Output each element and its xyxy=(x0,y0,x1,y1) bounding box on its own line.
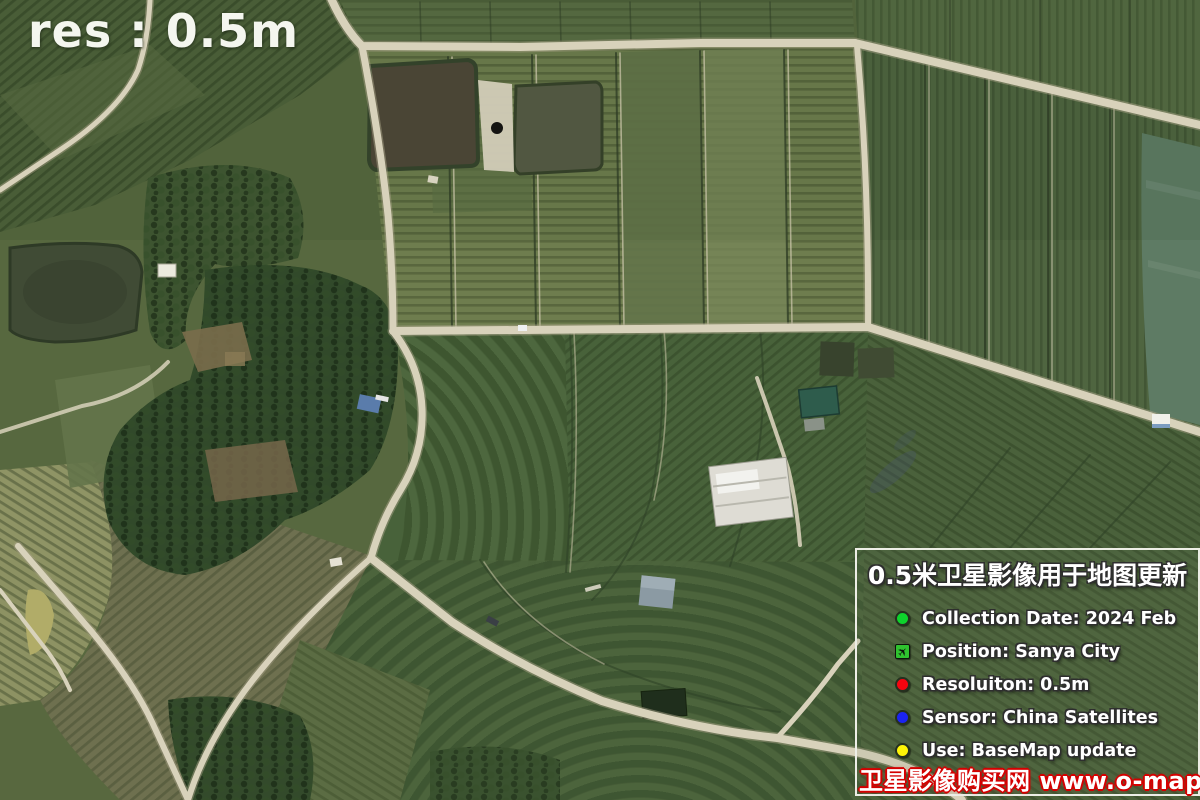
info-panel: 0.5米卫星影像用于地图更新 Collection Date: 2024 Feb… xyxy=(855,548,1200,796)
plane-glyph: ✈ xyxy=(895,644,911,660)
panel-title: 0.5米卫星影像用于地图更新 xyxy=(857,556,1198,592)
info-item-label: Resoluiton: 0.5m xyxy=(922,675,1089,695)
info-item-collection-date: Collection Date: 2024 Feb xyxy=(895,602,1198,635)
info-item-position: ✈ Position: Sanya City xyxy=(895,635,1198,668)
info-item-resolution: Resoluiton: 0.5m xyxy=(895,668,1198,701)
info-item-label: Sensor: China Satellites xyxy=(922,708,1158,728)
resolution-overlay-label: res : 0.5m xyxy=(28,4,299,58)
use-dot-icon xyxy=(895,743,910,758)
watermark-site-label: 卫星影像购买网 www.o-map.cn xyxy=(859,761,1200,796)
satellite-screenshot: res : 0.5m 0.5米卫星影像用于地图更新 Collection Dat… xyxy=(0,0,1200,800)
info-item-label: Use: BaseMap update xyxy=(922,741,1136,761)
collection-date-dot-icon xyxy=(895,611,910,626)
info-item-label: Position: Sanya City xyxy=(922,642,1120,662)
position-plane-icon: ✈ xyxy=(895,644,910,659)
sensor-dot-icon xyxy=(895,710,910,725)
info-item-label: Collection Date: 2024 Feb xyxy=(922,609,1176,629)
info-item-sensor: Sensor: China Satellites xyxy=(895,701,1198,734)
resolution-dot-icon xyxy=(895,677,910,692)
panel-list: Collection Date: 2024 Feb ✈ Position: Sa… xyxy=(857,602,1198,767)
